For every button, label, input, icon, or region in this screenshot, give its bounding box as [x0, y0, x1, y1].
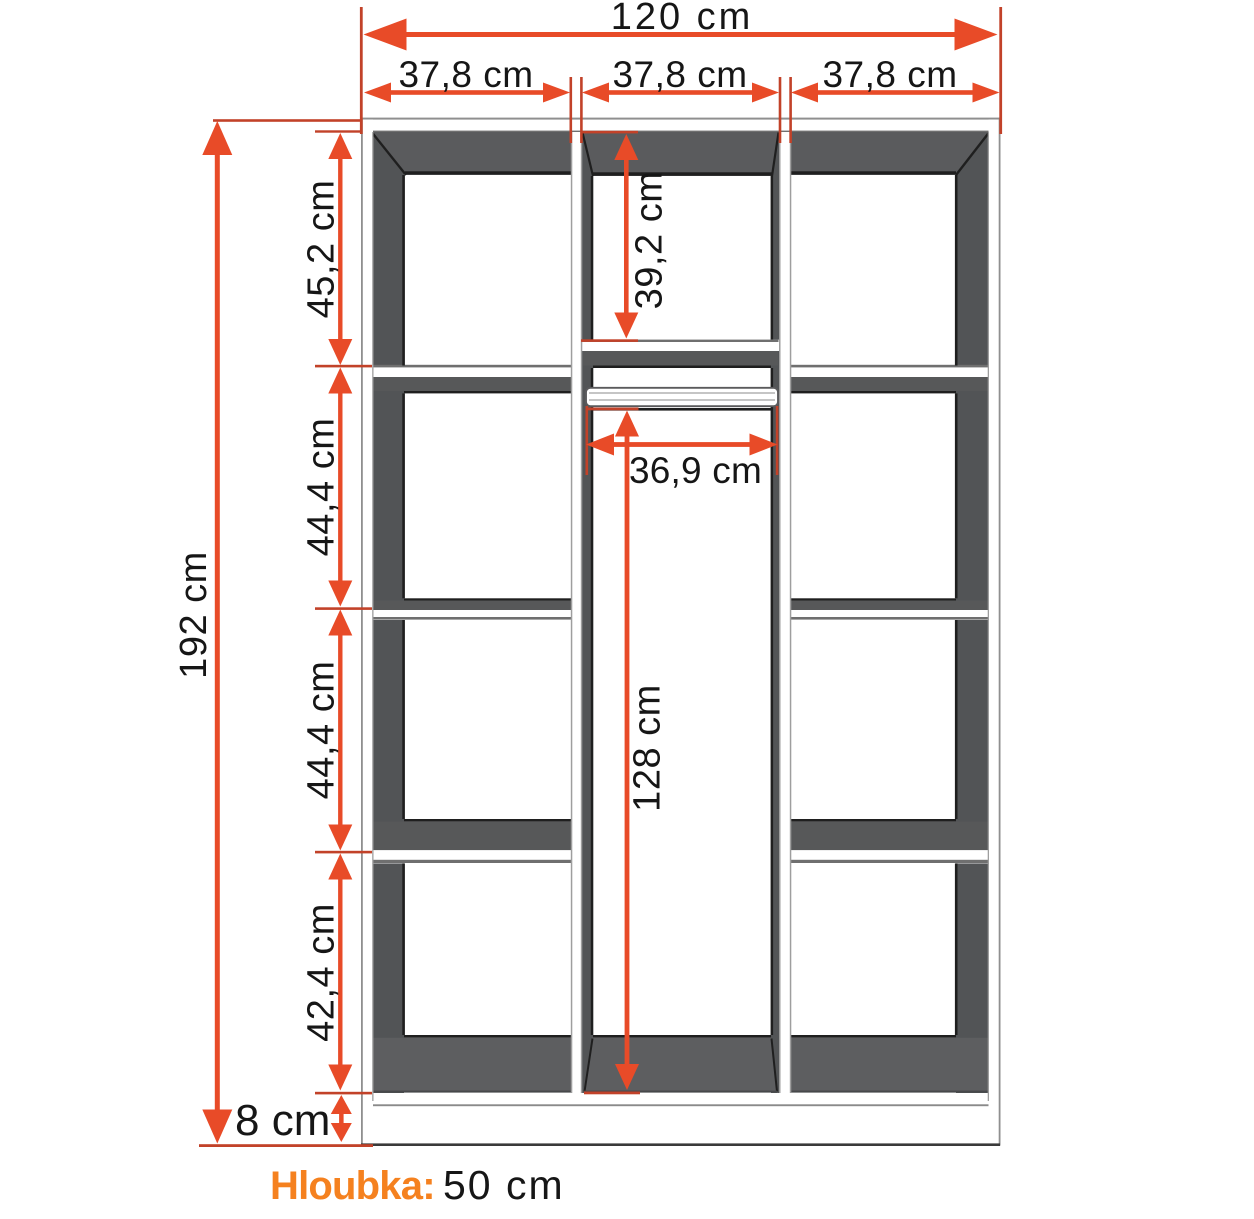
svg-text:8 cm: 8 cm: [235, 1096, 330, 1145]
svg-text:44,4 cm: 44,4 cm: [301, 661, 343, 800]
svg-text:37,8 cm: 37,8 cm: [612, 54, 747, 95]
svg-text:36,9 cm: 36,9 cm: [629, 450, 762, 491]
svg-text:50 cm: 50 cm: [443, 1162, 565, 1208]
svg-text:128 cm: 128 cm: [627, 684, 669, 812]
svg-text:42,4 cm: 42,4 cm: [301, 903, 343, 1042]
svg-text:39,2 cm: 39,2 cm: [629, 171, 671, 310]
svg-text:37,8 cm: 37,8 cm: [822, 54, 957, 95]
svg-text:192 cm: 192 cm: [173, 551, 215, 679]
svg-text:45,2 cm: 45,2 cm: [301, 180, 343, 319]
svg-text:Hloubka:: Hloubka:: [270, 1164, 435, 1208]
svg-text:37,8 cm: 37,8 cm: [398, 54, 533, 95]
svg-text:44,4 cm: 44,4 cm: [301, 418, 343, 557]
svg-text:120 cm: 120 cm: [611, 0, 754, 38]
